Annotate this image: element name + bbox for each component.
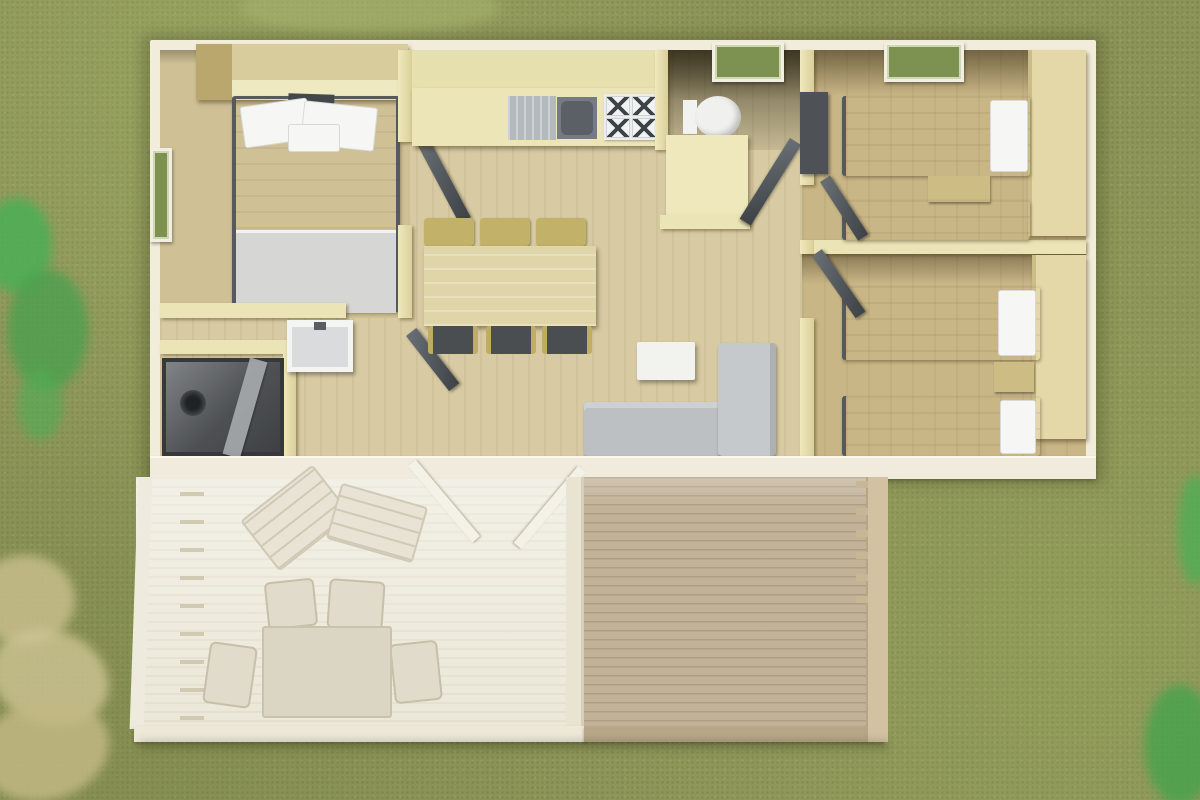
burner-icon	[606, 96, 630, 116]
garden-chair	[202, 641, 258, 709]
garden-chair	[389, 640, 443, 705]
building	[150, 40, 1096, 476]
wall	[814, 240, 1086, 254]
wc-bowl	[695, 96, 741, 138]
railing-post	[856, 596, 868, 603]
garden-table	[262, 626, 392, 718]
burner-icon	[606, 118, 630, 138]
plant-right-icon	[1178, 475, 1200, 585]
toilet-top-window	[712, 42, 784, 82]
toilet-cabinet	[666, 135, 748, 217]
tall-wardrobe	[1028, 50, 1086, 236]
single-bed	[842, 200, 1030, 240]
dining-chair	[424, 218, 474, 246]
kitchen-upper-cabinet	[412, 50, 658, 90]
wall	[800, 318, 814, 456]
dining-chair	[480, 218, 530, 246]
wall	[800, 240, 814, 254]
dining-chair-dark	[428, 326, 478, 354]
shrub-icon	[18, 370, 63, 440]
pillow	[998, 290, 1036, 356]
dark-closet	[800, 92, 828, 174]
burner-icon	[632, 118, 656, 138]
terrace-step-marks	[180, 492, 204, 726]
nightstand	[928, 176, 990, 202]
sofa-back	[718, 343, 776, 456]
bedroom-2-top-window	[884, 42, 964, 82]
front-wall	[150, 456, 1096, 479]
pillow	[288, 124, 340, 152]
plant-right-icon	[1145, 685, 1200, 800]
tall-wardrobe	[1032, 255, 1086, 439]
burner-icon	[632, 96, 656, 116]
wall	[398, 50, 412, 142]
wardrobe-side	[196, 44, 232, 100]
master-left-window	[150, 148, 172, 242]
shower-head-icon	[180, 390, 206, 416]
sink-basin	[561, 101, 593, 135]
garden-chair	[326, 578, 385, 632]
dining-chair-dark	[542, 326, 592, 354]
drainer	[508, 96, 556, 140]
railing-post	[856, 574, 868, 581]
railing-post	[856, 481, 868, 488]
railing-post	[856, 508, 868, 515]
sofa-seat	[584, 402, 722, 456]
wall	[160, 340, 290, 354]
dining-chair-dark	[486, 326, 536, 354]
terrace-deck-divider-beam	[566, 477, 584, 729]
dining-chair	[536, 218, 586, 246]
grass-light-patch	[240, 0, 500, 35]
wall	[398, 225, 412, 318]
wall	[160, 303, 346, 318]
dining-table	[424, 246, 596, 326]
washbasin-top	[292, 327, 348, 367]
nightstand	[994, 362, 1034, 392]
coffee-table	[637, 342, 695, 380]
deck-railing	[866, 477, 888, 742]
open-deck	[584, 477, 868, 726]
ground-shadow	[140, 740, 888, 750]
wall	[660, 215, 750, 229]
pillow	[990, 100, 1028, 172]
floor-plan-render	[0, 0, 1200, 800]
bed-blanket	[236, 230, 396, 313]
garden-chair	[264, 578, 319, 631]
washbasin-faucet-icon	[314, 322, 326, 330]
pillow	[1000, 400, 1036, 454]
railing-post	[856, 530, 868, 537]
railing-post	[856, 552, 868, 559]
